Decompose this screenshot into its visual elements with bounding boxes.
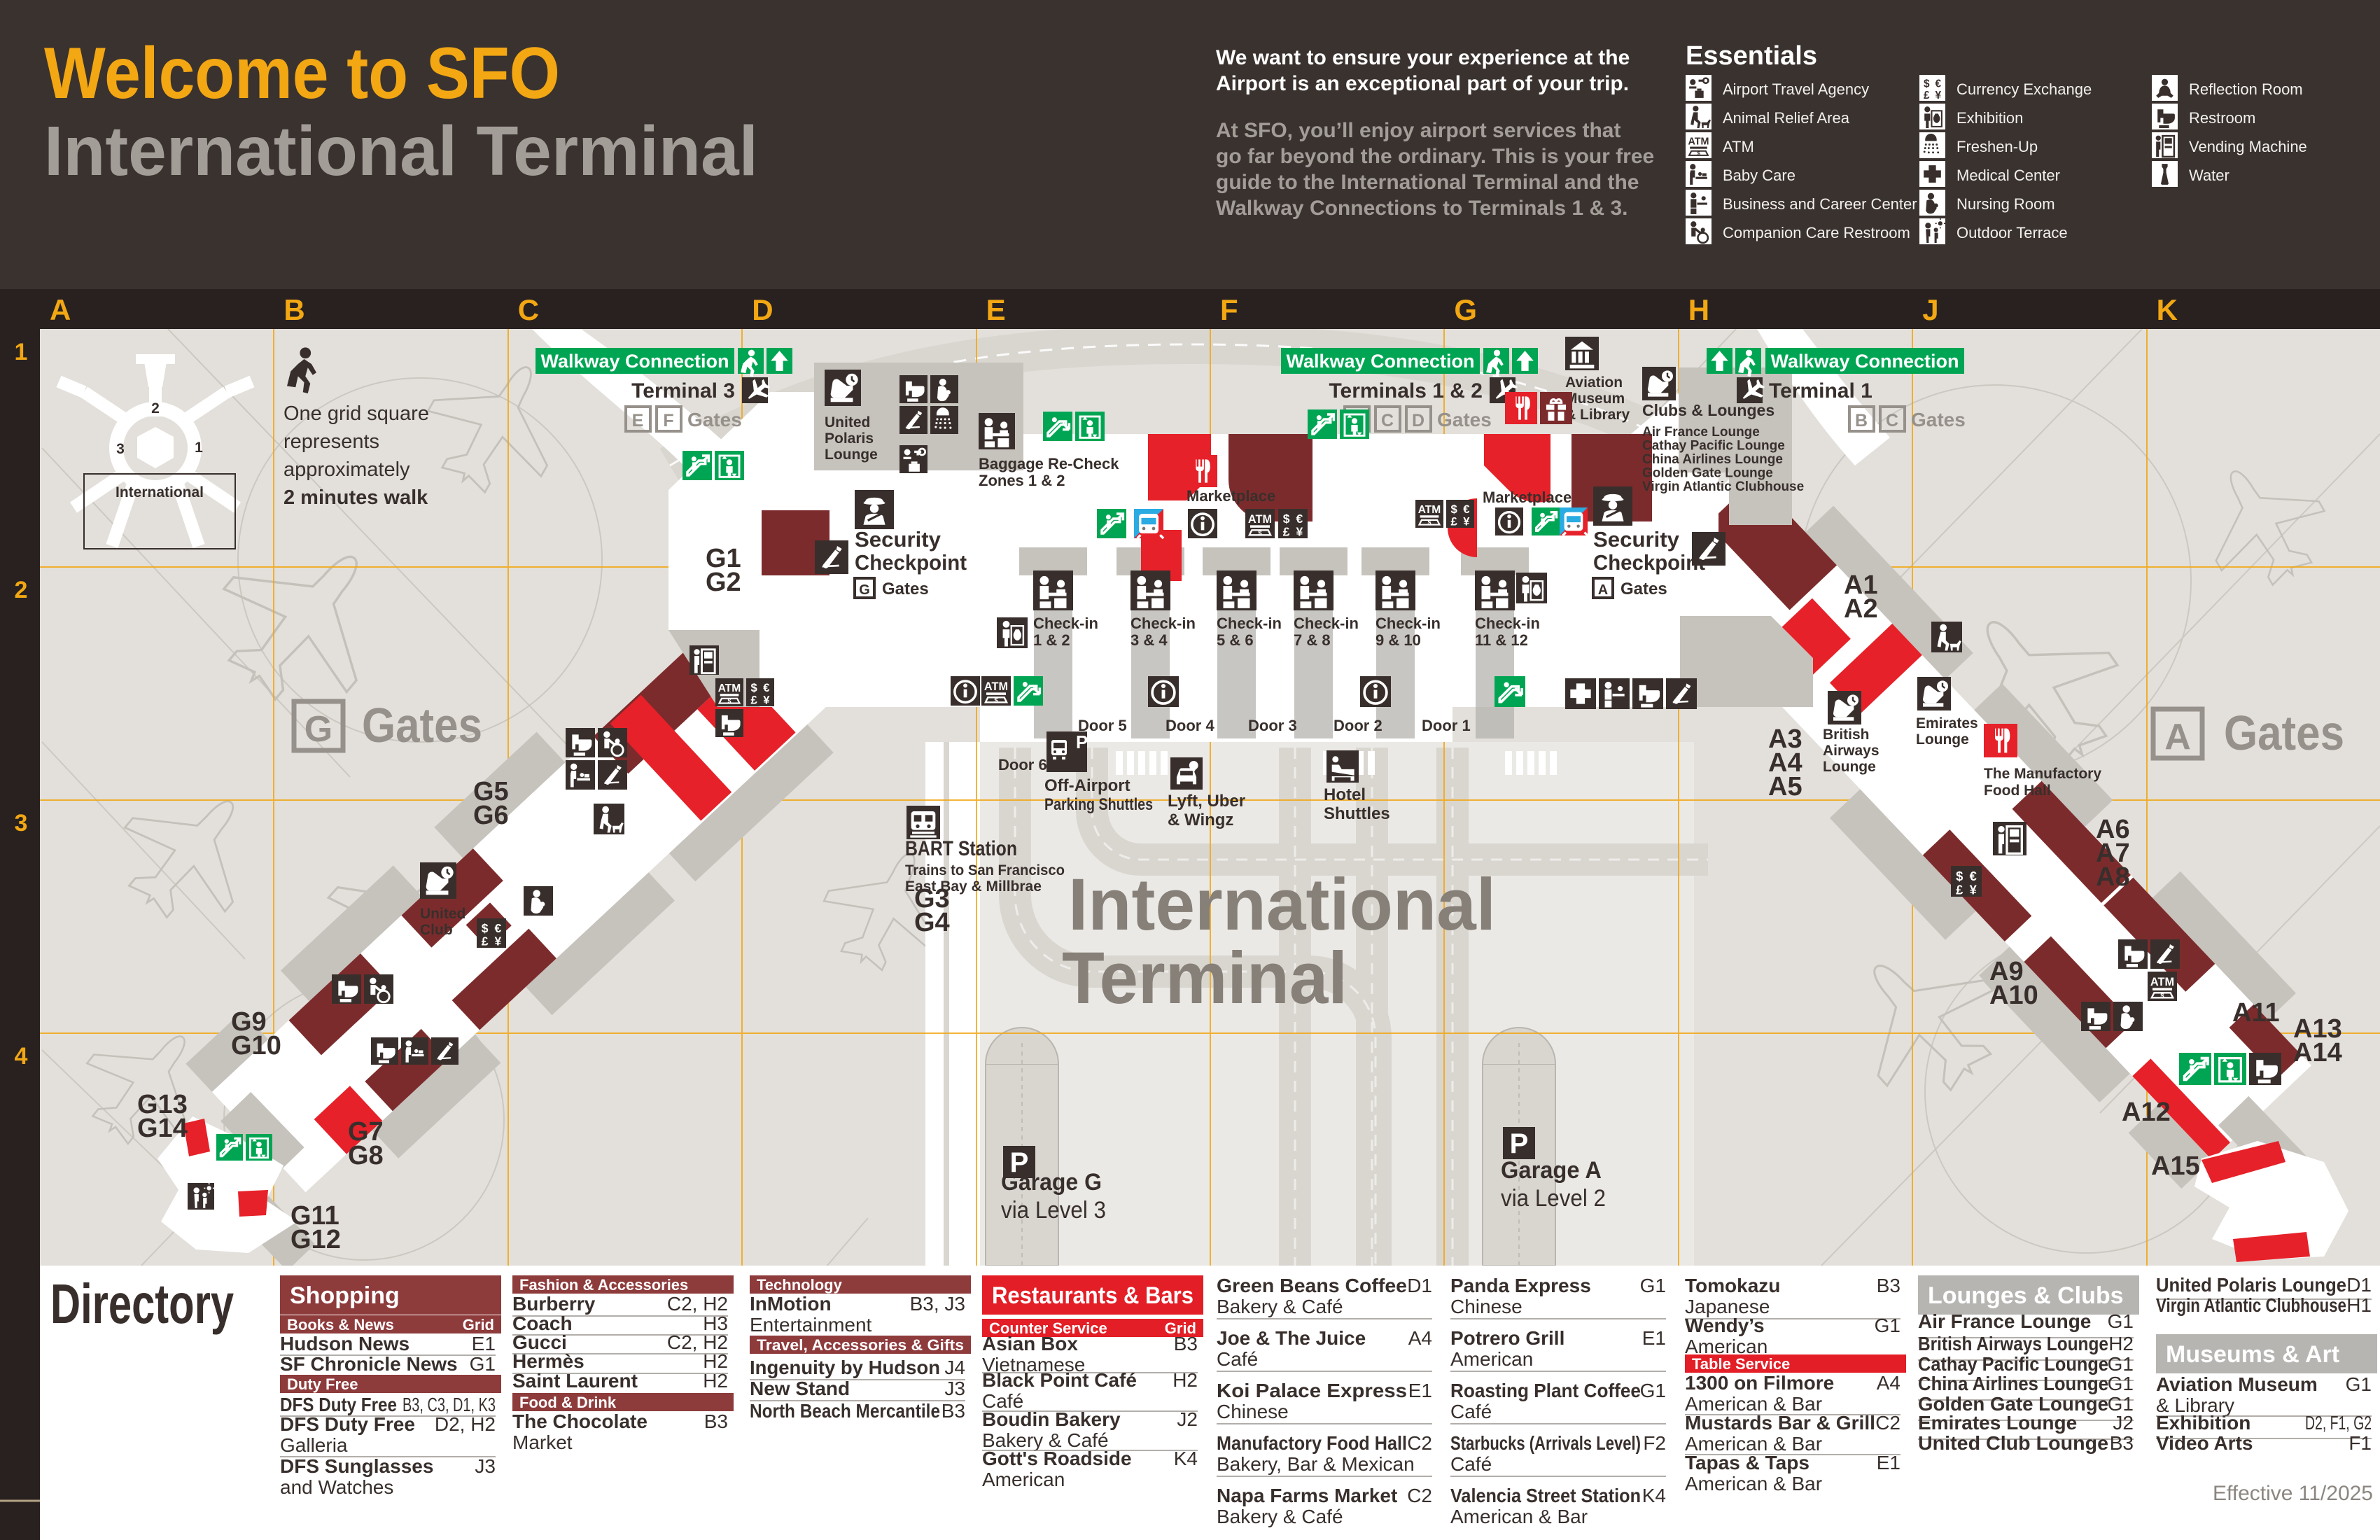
svg-text:A11: A11 [2232, 998, 2280, 1028]
svg-text:Baggage Re-Check: Baggage Re-Check [979, 455, 1119, 472]
svg-text:Tapas & Taps: Tapas & Taps [1685, 1452, 1809, 1473]
svg-text:Gott's Roadside: Gott's Roadside [982, 1448, 1132, 1469]
svg-text:Gates: Gates [1911, 409, 1966, 430]
svg-text:Marketplace: Marketplace [1186, 487, 1275, 505]
svg-text:via Level 3: via Level 3 [1001, 1197, 1106, 1224]
svg-text:New Stand: New Stand [750, 1378, 850, 1399]
svg-text:Food Hall: Food Hall [1984, 783, 2051, 799]
svg-text:Hotel: Hotel [1324, 785, 1366, 804]
svg-text:B: B [1855, 411, 1868, 430]
svg-text:Museums & Art: Museums & Art [2166, 1341, 2339, 1368]
svg-text:Fashion & Accessories: Fashion & Accessories [519, 1276, 688, 1294]
svg-text:A: A [50, 293, 71, 326]
svg-text:G12: G12 [290, 1225, 341, 1254]
svg-text:Gates: Gates [687, 409, 742, 430]
svg-text:A14: A14 [2293, 1038, 2342, 1067]
svg-text:Chinese: Chinese [1217, 1401, 1289, 1422]
svg-text:B3, C3, D1, K3: B3, C3, D1, K3 [402, 1394, 496, 1415]
svg-text:Table Service: Table Service [1692, 1355, 1790, 1373]
svg-text:Garage A: Garage A [1501, 1157, 1602, 1184]
svg-text:C: C [1381, 411, 1394, 430]
svg-text:Checkpoint: Checkpoint [855, 550, 967, 575]
svg-text:United: United [825, 414, 870, 430]
svg-text:Security: Security [855, 527, 941, 552]
svg-text:Security: Security [1593, 527, 1680, 552]
svg-text:Tomokazu: Tomokazu [1685, 1275, 1780, 1296]
svg-text:Cathay Pacific Lounge: Cathay Pacific Lounge [1918, 1353, 2108, 1375]
svg-text:DFS Duty Free: DFS Duty Free [280, 1394, 397, 1415]
svg-text:DFS Duty Free: DFS Duty Free [280, 1413, 415, 1435]
svg-text:Terminal 1: Terminal 1 [1769, 379, 1872, 402]
svg-text:C2, H2: C2, H2 [667, 1293, 728, 1315]
svg-text:Napa Farms Market: Napa Farms Market [1217, 1485, 1397, 1506]
svg-text:Reflection Room: Reflection Room [2189, 80, 2303, 98]
svg-text:H: H [1688, 293, 1709, 326]
svg-text:Saint Laurent: Saint Laurent [512, 1370, 638, 1392]
svg-text:Freshen-Up: Freshen-Up [1956, 138, 2038, 155]
svg-text:Restroom: Restroom [2189, 109, 2255, 127]
svg-text:J2: J2 [1177, 1408, 1198, 1430]
svg-text:Baby Care: Baby Care [1723, 167, 1795, 184]
svg-text:D2, F1, G2: D2, F1, G2 [2305, 1412, 2372, 1434]
svg-text:Manufactory Food Hall: Manufactory Food Hall [1217, 1432, 1407, 1454]
svg-text:Door 6: Door 6 [998, 756, 1047, 773]
svg-text:B3: B3 [2110, 1432, 2134, 1454]
svg-text:Welcome to SFO: Welcome to SFO [44, 33, 560, 114]
svg-text:InMotion: InMotion [750, 1293, 832, 1315]
svg-text:Emirates Lounge: Emirates Lounge [1918, 1412, 2077, 1434]
svg-text:Airport Travel Agency: Airport Travel Agency [1723, 80, 1869, 98]
svg-text:Food & Drink: Food & Drink [519, 1394, 617, 1411]
svg-text:International: International [115, 484, 204, 500]
svg-text:SF Chronicle News: SF Chronicle News [280, 1353, 458, 1375]
svg-text:Grid: Grid [463, 1316, 494, 1333]
svg-text:Clubs & Lounges: Clubs & Lounges [1642, 401, 1774, 419]
svg-text:Lounge: Lounge [1823, 759, 1876, 775]
svg-text:ATM: ATM [1723, 138, 1754, 155]
svg-text:B3: B3 [704, 1410, 728, 1432]
svg-text:International: International [1068, 864, 1496, 946]
svg-text:B: B [283, 293, 304, 326]
svg-text:Shuttles: Shuttles [1324, 804, 1390, 823]
svg-text:G1: G1 [470, 1353, 496, 1375]
svg-text:Outdoor Terrace: Outdoor Terrace [1956, 224, 2068, 241]
svg-text:A4: A4 [1877, 1372, 1900, 1394]
svg-text:G1: G1 [2108, 1373, 2134, 1394]
svg-text:Virgin Atlantic Clubhouse: Virgin Atlantic Clubhouse [2156, 1294, 2346, 1316]
svg-text:Aviation: Aviation [1565, 374, 1623, 391]
svg-text:Exhibition: Exhibition [1956, 109, 2023, 127]
svg-text:Zones 1 & 2: Zones 1 & 2 [979, 472, 1065, 489]
svg-text:Companion Care Restroom: Companion Care Restroom [1723, 224, 1910, 241]
svg-text:F: F [663, 411, 673, 430]
svg-text:Walkway Connection: Walkway Connection [1770, 351, 1959, 372]
svg-text:G1: G1 [1640, 1380, 1666, 1401]
svg-text:B3: B3 [1877, 1275, 1900, 1296]
svg-text:J3: J3 [475, 1455, 496, 1477]
svg-text:Terminals 1 & 2: Terminals 1 & 2 [1329, 379, 1483, 402]
svg-text:Chinese: Chinese [1450, 1296, 1522, 1317]
svg-text:D: D [1412, 411, 1424, 430]
svg-text:Bakery, Bar & Mexican: Bakery, Bar & Mexican [1217, 1453, 1415, 1475]
svg-text:1300 on Filmore: 1300 on Filmore [1685, 1372, 1834, 1394]
svg-text:Burberry: Burberry [512, 1293, 596, 1315]
svg-text:British Airways Lounge: British Airways Lounge [1918, 1333, 2108, 1354]
svg-text:Check-in: Check-in [1375, 615, 1441, 632]
svg-text:Aviation Museum: Aviation Museum [2156, 1373, 2318, 1395]
svg-text:H1: H1 [2346, 1294, 2372, 1316]
svg-text:via Level 2: via Level 2 [1501, 1185, 1606, 1212]
svg-text:1: 1 [195, 440, 203, 456]
svg-text:K: K [2157, 293, 2178, 326]
svg-text:China Airlines Lounge: China Airlines Lounge [1642, 452, 1783, 467]
svg-text:Café: Café [1450, 1453, 1492, 1475]
svg-text:Ingenuity by Hudson: Ingenuity by Hudson [750, 1357, 940, 1378]
svg-text:Nursing Room: Nursing Room [1956, 195, 2055, 213]
svg-text:Currency Exchange: Currency Exchange [1956, 80, 2092, 98]
svg-text:E1: E1 [1877, 1452, 1900, 1473]
svg-text:G6: G6 [473, 801, 509, 830]
svg-text:G2: G2 [706, 568, 741, 597]
svg-text:1: 1 [15, 339, 28, 365]
svg-text:G: G [304, 709, 332, 750]
svg-text:North Beach Mercantile: North Beach Mercantile [750, 1400, 940, 1422]
svg-text:Potrero Grill: Potrero Grill [1450, 1327, 1564, 1349]
svg-text:G1: G1 [2108, 1310, 2134, 1332]
svg-text:Check-in: Check-in [1294, 615, 1359, 632]
svg-text:H2: H2 [1172, 1369, 1198, 1391]
svg-text:Exhibition: Exhibition [2156, 1412, 2250, 1434]
svg-text:Bakery & Café: Bakery & Café [1217, 1296, 1343, 1317]
svg-text:K4: K4 [1174, 1448, 1198, 1469]
svg-text:International Terminal: International Terminal [44, 112, 758, 190]
svg-text:F2: F2 [1643, 1432, 1666, 1454]
svg-text:Check-in: Check-in [1033, 615, 1098, 632]
svg-text:F: F [1220, 293, 1238, 326]
svg-text:Mustards Bar & Grill: Mustards Bar & Grill [1685, 1412, 1875, 1434]
svg-text:9 & 10: 9 & 10 [1375, 631, 1421, 649]
svg-text:Virgin Atlantic Clubhouse: Virgin Atlantic Clubhouse [1642, 479, 1804, 494]
svg-text:Directory: Directory [50, 1273, 234, 1335]
svg-text:2: 2 [151, 400, 160, 416]
svg-text:represents: represents [283, 430, 379, 453]
svg-text:Walkway Connection: Walkway Connection [1286, 351, 1474, 372]
svg-text:Medical Center: Medical Center [1956, 167, 2060, 184]
svg-text:7 & 8: 7 & 8 [1294, 631, 1331, 649]
svg-text:Terminal: Terminal [1062, 937, 1347, 1019]
svg-text:Garage G: Garage G [1001, 1169, 1102, 1196]
svg-text:Black Point Café: Black Point Café [982, 1369, 1137, 1391]
svg-text:approximately: approximately [283, 458, 410, 481]
svg-text:American: American [1685, 1336, 1767, 1357]
svg-text:5 & 6: 5 & 6 [1217, 631, 1254, 649]
svg-text:Green Beans Coffee: Green Beans Coffee [1217, 1275, 1407, 1296]
svg-text:Joe & The Juice: Joe & The Juice [1217, 1327, 1366, 1349]
svg-text:Entertainment: Entertainment [750, 1314, 872, 1336]
svg-text:G1: G1 [2346, 1373, 2372, 1395]
svg-text:P: P [1510, 1128, 1529, 1159]
svg-text:Gates: Gates [1437, 409, 1492, 430]
svg-text:A: A [2164, 717, 2191, 757]
svg-text:C2: C2 [1875, 1412, 1900, 1434]
svg-text:C: C [1886, 411, 1898, 430]
svg-text:H2: H2 [703, 1370, 728, 1392]
svg-text:D2, H2: D2, H2 [435, 1413, 496, 1435]
svg-text:United: United [420, 906, 465, 922]
svg-text:Check-in: Check-in [1475, 615, 1540, 632]
svg-text:C2: C2 [1407, 1432, 1432, 1454]
svg-text:J3: J3 [944, 1378, 965, 1399]
svg-text:China Airlines Lounge: China Airlines Lounge [1918, 1373, 2108, 1394]
svg-text:Gates: Gates [2224, 706, 2344, 760]
svg-text:DFS Sunglasses: DFS Sunglasses [280, 1455, 433, 1477]
svg-text:Hermès: Hermès [512, 1350, 584, 1372]
svg-text:A2: A2 [1844, 594, 1878, 624]
svg-text:Air France Lounge: Air France Lounge [1918, 1310, 2091, 1332]
svg-text:J: J [1922, 293, 1938, 326]
svg-text:Polaris: Polaris [825, 430, 874, 447]
svg-text:G8: G8 [348, 1141, 384, 1170]
svg-text:Lounges & Clubs: Lounges & Clubs [1928, 1282, 2124, 1309]
svg-text:A4: A4 [1408, 1327, 1432, 1349]
svg-text:British: British [1823, 727, 1870, 743]
svg-text:Roasting Plant Coffee: Roasting Plant Coffee [1450, 1380, 1641, 1401]
svg-text:Airport is an exceptional part: Airport is an exceptional part of your t… [1216, 72, 1629, 95]
svg-text:Valencia Street Station: Valencia Street Station [1450, 1485, 1641, 1506]
svg-text:1 & 2: 1 & 2 [1033, 631, 1070, 649]
svg-text:Video Arts: Video Arts [2156, 1432, 2253, 1454]
svg-text:We want to ensure your experie: We want to ensure your experience at the [1216, 46, 1630, 69]
svg-text:B3: B3 [941, 1400, 965, 1422]
svg-text:Boudin Bakery: Boudin Bakery [982, 1408, 1121, 1430]
svg-text:P: P [1076, 731, 1088, 752]
svg-text:E: E [986, 293, 1006, 326]
svg-text:3: 3 [116, 441, 125, 457]
svg-text:A15: A15 [2151, 1151, 2200, 1181]
svg-text:11 & 12: 11 & 12 [1475, 631, 1528, 649]
svg-text:A12: A12 [2122, 1098, 2171, 1127]
svg-text:2: 2 [15, 577, 28, 603]
svg-text:The Chocolate: The Chocolate [512, 1410, 647, 1432]
svg-text:Café: Café [1217, 1348, 1258, 1370]
svg-text:D1: D1 [2346, 1274, 2372, 1296]
svg-text:Café: Café [1450, 1401, 1492, 1422]
svg-text:Books & News: Books & News [287, 1316, 394, 1333]
svg-text:Bakery & Café: Bakery & Café [1217, 1506, 1343, 1527]
svg-text:Walkway Connection: Walkway Connection [540, 351, 729, 372]
svg-text:Essentials: Essentials [1686, 41, 1817, 71]
svg-text:Door 3: Door 3 [1248, 717, 1297, 734]
svg-text:A10: A10 [1989, 981, 2038, 1010]
svg-text:G1: G1 [1875, 1315, 1900, 1336]
svg-text:American: American [1450, 1348, 1533, 1370]
svg-text:American & Bar: American & Bar [1685, 1473, 1822, 1494]
svg-text:United Polaris Lounge: United Polaris Lounge [2156, 1274, 2346, 1296]
svg-text:Restaurants & Bars: Restaurants & Bars [992, 1282, 1193, 1309]
svg-text:At SFO, you’ll enjoy airport s: At SFO, you’ll enjoy airport services th… [1216, 119, 1620, 142]
svg-text:G14: G14 [137, 1114, 188, 1143]
svg-text:Door 4: Door 4 [1165, 717, 1214, 734]
svg-text:Museum: Museum [1565, 391, 1625, 407]
svg-text:BART Station: BART Station [905, 837, 1017, 860]
svg-text:Airways: Airways [1823, 743, 1879, 759]
svg-text:B3: B3 [1174, 1333, 1198, 1354]
svg-text:Checkpoint: Checkpoint [1593, 550, 1705, 575]
svg-text:Air France Lounge: Air France Lounge [1642, 425, 1760, 440]
svg-text:E: E [632, 411, 644, 430]
svg-text:Check-in: Check-in [1217, 615, 1282, 632]
svg-text:and Watches: and Watches [280, 1476, 393, 1498]
svg-text:Door 2: Door 2 [1333, 717, 1382, 734]
svg-text:A5: A5 [1768, 772, 1802, 801]
svg-text:Koi Palace Express: Koi Palace Express [1217, 1380, 1407, 1401]
svg-text:The Manufactory: The Manufactory [1984, 766, 2101, 782]
svg-text:E1: E1 [1408, 1380, 1432, 1401]
svg-text:Gates: Gates [362, 698, 482, 752]
svg-text:Club: Club [420, 922, 453, 938]
svg-text:E1: E1 [472, 1333, 496, 1354]
svg-text:G4: G4 [914, 908, 950, 937]
svg-text:Marketplace: Marketplace [1483, 489, 1571, 506]
svg-text:Shopping: Shopping [290, 1282, 400, 1309]
svg-text:Off-Airport: Off-Airport [1044, 776, 1130, 795]
svg-text:G10: G10 [231, 1031, 281, 1060]
svg-text:B3, J3: B3, J3 [910, 1293, 965, 1315]
svg-text:Trains to San Francisco: Trains to San Francisco [905, 862, 1065, 878]
svg-text:Door 1: Door 1 [1422, 717, 1471, 734]
svg-text:F1: F1 [2348, 1432, 2372, 1454]
svg-text:J4: J4 [944, 1357, 965, 1378]
svg-text:Emirates: Emirates [1916, 715, 1978, 731]
svg-text:Starbucks (Arrivals Level): Starbucks (Arrivals Level) [1450, 1432, 1641, 1454]
svg-text:Cathay Pacific Lounge: Cathay Pacific Lounge [1642, 439, 1785, 454]
svg-text:4: 4 [15, 1043, 28, 1070]
svg-text:Water: Water [2189, 167, 2229, 184]
svg-text:& Wingz: & Wingz [1168, 811, 1233, 829]
svg-text:E1: E1 [1642, 1327, 1666, 1349]
svg-text:American & Bar: American & Bar [1450, 1506, 1588, 1527]
svg-text:Check-in: Check-in [1130, 615, 1196, 632]
svg-text:A: A [1598, 582, 1608, 598]
svg-text:Lounge: Lounge [825, 447, 878, 463]
svg-text:Hudson News: Hudson News [280, 1333, 409, 1354]
svg-text:& Library: & Library [1565, 407, 1630, 423]
svg-text:Walkway Connections to Termina: Walkway Connections to Terminals 1 & 3. [1216, 197, 1627, 220]
svg-text:go far beyond the ordinary. Th: go far beyond the ordinary. This is your… [1216, 145, 1654, 168]
svg-text:Market: Market [512, 1431, 573, 1453]
svg-text:D: D [752, 293, 773, 326]
svg-text:Panda Express: Panda Express [1450, 1275, 1591, 1296]
svg-text:Travel, Accessories & Gifts: Travel, Accessories & Gifts [757, 1336, 964, 1354]
svg-text:Gates: Gates [1620, 580, 1667, 598]
svg-text:Effective 11/2025: Effective 11/2025 [2213, 1482, 2373, 1505]
svg-text:G1: G1 [1640, 1275, 1666, 1296]
svg-text:A8: A8 [2096, 862, 2130, 892]
svg-text:G1: G1 [2108, 1353, 2134, 1375]
svg-text:guide to the International Ter: guide to the International Terminal and … [1216, 171, 1639, 194]
svg-text:Parking Shuttles: Parking Shuttles [1044, 795, 1153, 814]
svg-text:Galleria: Galleria [280, 1434, 348, 1456]
svg-text:Animal Relief Area: Animal Relief Area [1723, 109, 1850, 127]
svg-text:H2: H2 [2108, 1333, 2134, 1354]
svg-text:Terminal 3: Terminal 3 [631, 379, 735, 402]
svg-text:J2: J2 [2113, 1412, 2134, 1434]
svg-text:Lounge: Lounge [1916, 731, 1969, 748]
svg-text:D1: D1 [1407, 1275, 1432, 1296]
svg-text:United Club Lounge: United Club Lounge [1918, 1432, 2108, 1454]
svg-text:Lyft, Uber: Lyft, Uber [1168, 792, 1245, 811]
svg-text:Technology: Technology [757, 1276, 843, 1294]
svg-text:G: G [859, 582, 870, 598]
svg-text:K4: K4 [1642, 1485, 1666, 1506]
svg-text:Gates: Gates [882, 580, 929, 598]
svg-text:Wendy’s: Wendy’s [1685, 1315, 1765, 1336]
svg-text:G: G [1454, 293, 1477, 326]
svg-text:American: American [982, 1469, 1065, 1490]
svg-text:Duty Free: Duty Free [287, 1375, 358, 1393]
svg-text:One grid square: One grid square [283, 402, 429, 425]
svg-text:C: C [518, 293, 539, 326]
svg-text:C2: C2 [1407, 1485, 1432, 1506]
svg-text:Asian Box: Asian Box [982, 1333, 1078, 1354]
svg-text:3: 3 [15, 810, 28, 836]
svg-text:2 minutes walk: 2 minutes walk [283, 486, 428, 509]
svg-text:3 & 4: 3 & 4 [1130, 631, 1168, 649]
svg-text:Golden Gate Lounge: Golden Gate Lounge [1642, 466, 1773, 481]
svg-text:Vending Machine: Vending Machine [2189, 138, 2307, 155]
svg-text:Business and Career Center: Business and Career Center [1723, 195, 1917, 213]
svg-text:H2: H2 [703, 1350, 728, 1372]
